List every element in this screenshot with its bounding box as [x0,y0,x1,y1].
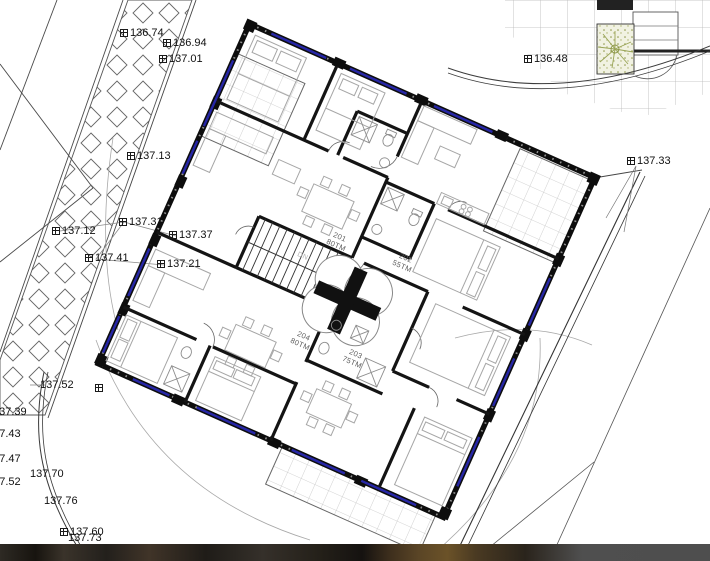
elevation-marker: 137.43 [0,428,21,440]
elevation-value: 137.13 [137,150,171,162]
survey-cross-icon [85,254,93,262]
elevation-value: 137.33 [637,155,671,167]
elevation-value: 136.94 [173,37,207,49]
apartment-label: 20480TM [289,328,315,353]
elevation-value: 136.74 [130,27,164,39]
elevation-value: 137.31 [129,216,163,228]
elevation-marker: 137.37 [169,229,213,241]
elevation-marker: 137.76 [44,495,78,507]
elevation-value: 137.21 [167,258,201,270]
elevation-marker: 137.52 [40,379,74,391]
apartment-label: 20255TM [391,250,417,275]
elevation-value: 136.48 [534,53,568,65]
elevation-value: 137.37 [179,229,213,241]
elevation-marker: 136.94 [163,37,207,49]
elevation-value: 137.12 [62,225,96,237]
elevation-marker: 137.73 [68,532,102,544]
survey-cross-icon [119,218,127,226]
elevation-marker [95,384,103,392]
survey-cross-icon [120,29,128,37]
elevation-marker: 137.47 [0,453,21,465]
survey-cross-icon [157,260,165,268]
elevation-marker: 137.52 [0,476,21,488]
elevation-value: 137.52 [40,379,74,391]
elevation-marker: 137.01 [159,53,203,65]
apartment-label: 20375TM [341,346,367,371]
floorplan-canvas: 136.74136.94137.01136.48137.13137.33137.… [0,0,710,561]
apartment-labels-layer: 20180TM20255TM20480TM20375TM [0,0,710,561]
elevation-marker: 137.12 [52,225,96,237]
elevation-value: 137.41 [95,252,129,264]
elevation-marker: 137.41 [85,252,129,264]
elevation-value: 137.52 [0,476,21,488]
survey-cross-icon [524,55,532,63]
survey-cross-icon [627,157,635,165]
elevation-marker: 136.74 [120,27,164,39]
elevation-marker: 137.70 [30,468,64,480]
elevation-value: 137.47 [0,453,21,465]
elevation-marker: 137.21 [157,258,201,270]
elevation-value: 137.76 [44,495,78,507]
elevation-marker: 136.48 [524,53,568,65]
apartment-label: 20180TM [325,229,351,254]
elevation-value: 137.39 [0,406,27,418]
survey-cross-icon [127,152,135,160]
survey-cross-icon [159,55,167,63]
elevation-value: 137.43 [0,428,21,440]
survey-cross-icon [60,528,68,536]
elevation-marker: 137.39 [0,406,27,418]
elevation-value: 137.73 [68,532,102,544]
elevation-value: 137.70 [30,468,64,480]
survey-cross-icon [163,39,171,47]
elevation-marker: 137.13 [127,150,171,162]
photo-strip [0,544,710,561]
elevation-marker: 137.31 [119,216,163,228]
survey-cross-icon [169,231,177,239]
survey-cross-icon [95,384,103,392]
survey-cross-icon [52,227,60,235]
elevation-value: 137.01 [169,53,203,65]
elevation-marker: 137.33 [627,155,671,167]
